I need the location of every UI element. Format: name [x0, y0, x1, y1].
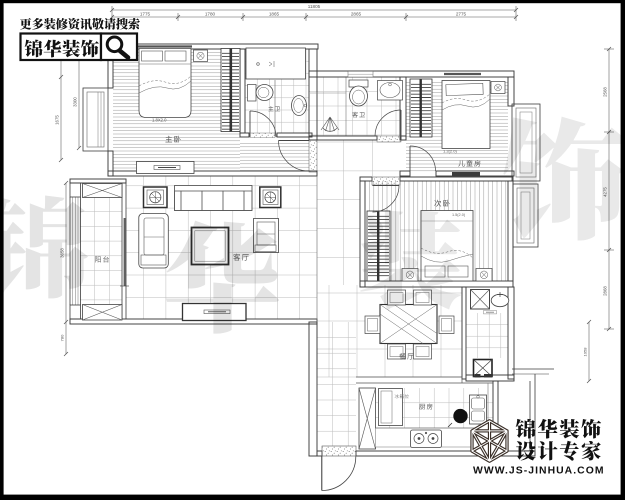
svg-text:WWW.JS-JINHUA.COM: WWW.JS-JINHUA.COM [473, 466, 605, 477]
svg-text:1775: 1775 [140, 12, 151, 17]
svg-text:1865: 1865 [269, 12, 280, 17]
svg-text:1.8X2.0: 1.8X2.0 [152, 118, 167, 123]
svg-text:3300: 3300 [73, 97, 78, 107]
svg-text:1.5(2.0): 1.5(2.0) [452, 213, 466, 217]
svg-text:2868: 2868 [603, 286, 608, 296]
svg-text:11805: 11805 [308, 4, 321, 9]
svg-text:2865: 2865 [351, 12, 362, 17]
svg-text:1058: 1058 [583, 347, 588, 357]
svg-text:1.2(2.0): 1.2(2.0) [443, 149, 457, 154]
svg-text:2775: 2775 [456, 12, 467, 17]
svg-text:2568: 2568 [603, 87, 608, 97]
svg-text:780: 780 [60, 334, 65, 341]
svg-text:1675: 1675 [55, 115, 60, 125]
svg-text:1780: 1780 [205, 12, 216, 17]
